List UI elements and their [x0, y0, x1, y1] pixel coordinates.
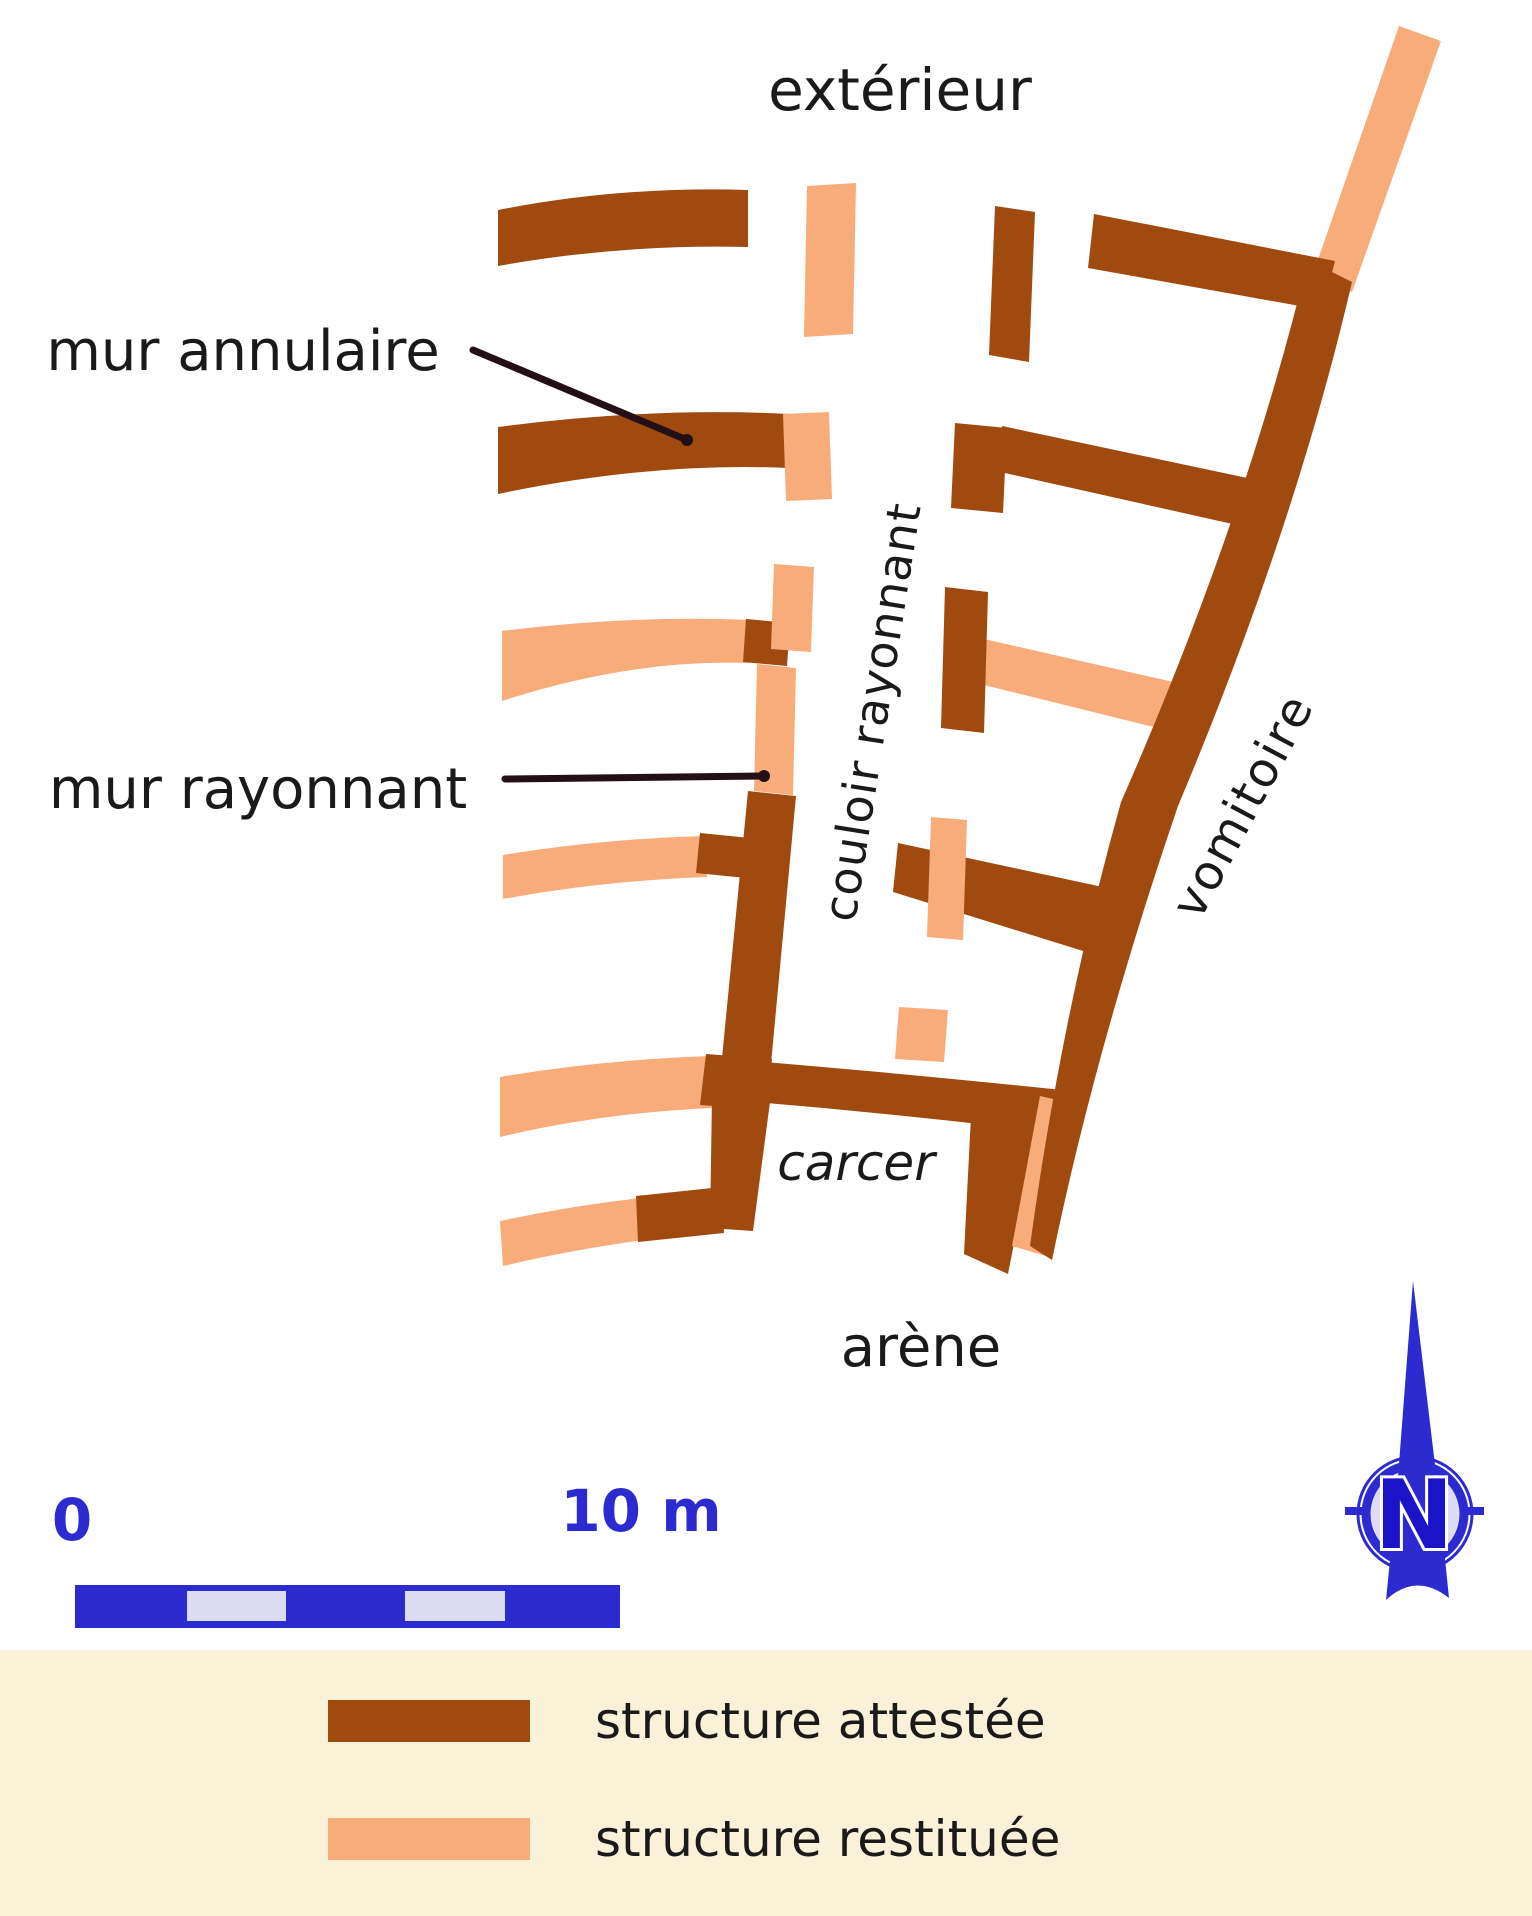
wall-restored-radial-top-bar: [804, 183, 856, 337]
wall-attested-ring3-right-bar: [941, 587, 988, 733]
wall-attested-ring4-right-band: [893, 843, 1112, 955]
wall-restored-ring5-right-stub: [895, 1007, 948, 1062]
label-exterieur: extérieur: [768, 61, 1032, 119]
wall-attested-vomitoire-outer: [1030, 260, 1352, 1260]
scale-bar-segment-2: [405, 1591, 505, 1621]
page: extérieurmur annulairemur rayonnantcoulo…: [0, 0, 1532, 1916]
wall-restored-ring4-left: [503, 836, 707, 899]
wall-attested-carcer-left: [710, 1097, 770, 1231]
scale-bar-track: [75, 1585, 620, 1628]
wall-attested-radial-mid: [722, 791, 796, 1064]
wall-restored-radial-mid-stub: [771, 564, 814, 652]
wall-attested-ring2-right-stub: [951, 423, 1007, 513]
mur-rayonnant-leader: [505, 776, 764, 779]
wall-restored-ring2-stub: [783, 412, 832, 501]
wall-restored-ring4-right-stub: [927, 817, 967, 940]
legend-band: structure attestéestructure restituée: [0, 1650, 1532, 1916]
label-scale-10m: 10 m: [560, 1482, 721, 1540]
scale-bar-segment-1: [187, 1591, 286, 1621]
label-mur-rayonnant: mur rayonnant: [49, 762, 467, 818]
site-plan: [0, 0, 1532, 1916]
wall-attested-radial-top: [989, 206, 1035, 362]
legend-swatch-attested: [328, 1700, 530, 1742]
wall-attested-ring1-right: [1088, 214, 1335, 310]
label-scale-0: 0: [52, 1491, 92, 1549]
wall-restored-ring6-left: [500, 1198, 644, 1266]
legend-swatch-restored: [328, 1818, 530, 1860]
mur-rayonnant-leader-dot: [758, 770, 770, 782]
wall-attested-ring1-left: [498, 189, 748, 266]
legend-label-attested: structure attestée: [595, 1696, 1046, 1746]
label-carcer: carcer: [777, 1138, 935, 1188]
wall-restored-ring5-left: [500, 1056, 713, 1137]
wall-restored-ring3-right-band: [980, 639, 1182, 731]
label-arene: arène: [841, 1320, 1002, 1376]
wall-restored-ring3-left: [502, 619, 750, 701]
legend-label-restored: structure restituée: [595, 1814, 1060, 1864]
wall-restored-top-diagonal: [1312, 26, 1441, 292]
label-mur-annulaire: mur annulaire: [46, 324, 439, 380]
mur-annulaire-leader-dot: [681, 434, 693, 446]
